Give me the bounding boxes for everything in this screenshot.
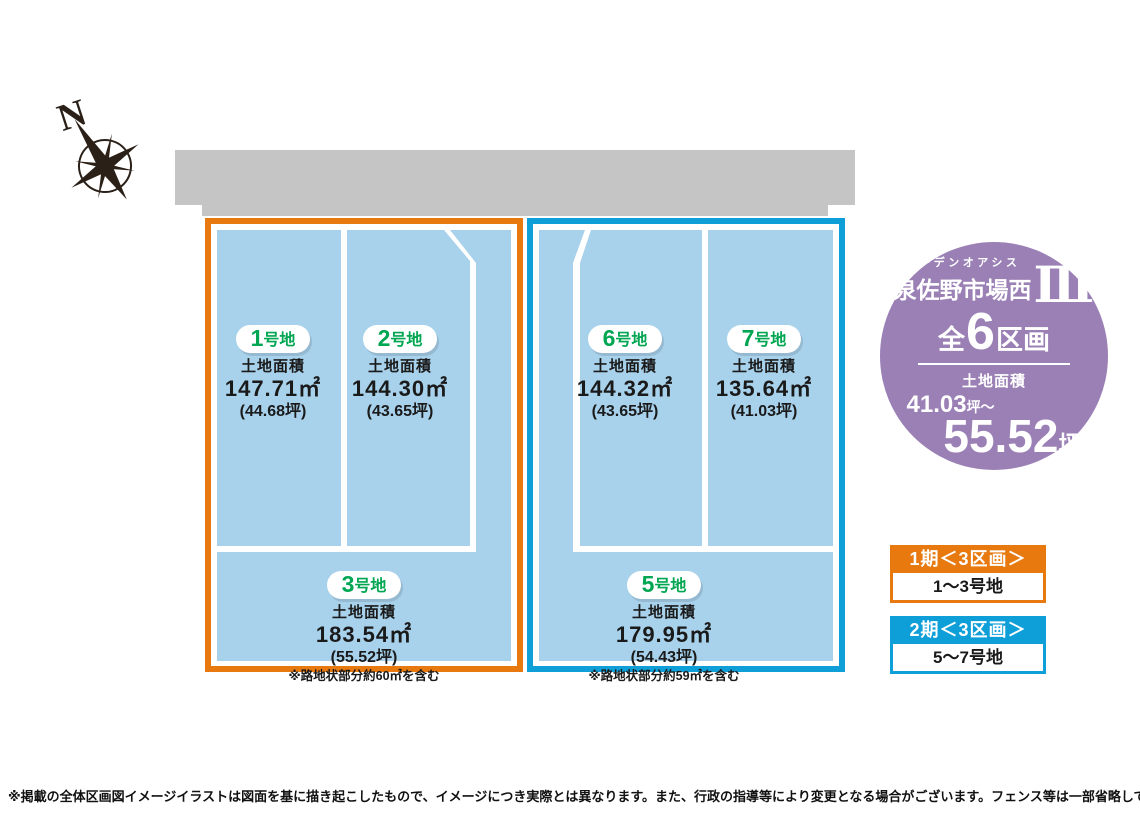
count-suffix: 区画 [996, 318, 1050, 357]
count-prefix: 全 [938, 318, 965, 357]
total-lot-count: 全6区画 [938, 309, 1050, 357]
area-label: 土地面積 [249, 604, 479, 621]
flyer-canvas: N 1号地 土地面積 147.71㎡ (44.68坪) 2号地 土地面積 144… [0, 0, 1140, 830]
compass-rose-icon: N [45, 88, 160, 213]
plot-3-label: 3号地 土地面積 183.54㎡ (55.52坪) ※路地状部分約60㎡を含む [249, 571, 479, 683]
project-title: 泉佐野市場西 [894, 271, 1032, 305]
project-subtitle: ガーデンオアシス [905, 254, 1021, 270]
plot-number-suffix: 号地 [615, 332, 647, 349]
plot-number: 1 [251, 325, 264, 351]
road [175, 150, 855, 216]
area-label: 土地面積 [649, 358, 879, 375]
count-number: 6 [966, 309, 995, 356]
plot-2-pill: 2号地 [363, 325, 438, 353]
disclaimer-text: ※掲載の全体区画図イメージイラストは図面を基に描き起こしたもので、イメージにつき… [8, 786, 1136, 805]
project-roman-numeral: Ⅲ [1034, 266, 1095, 305]
plot-number: 2 [378, 325, 391, 351]
plot-number: 7 [742, 325, 755, 351]
plot-3-pill: 3号地 [327, 571, 402, 599]
area-note: ※路地状部分約60㎡を含む [249, 669, 479, 683]
area-note: ※路地状部分約59㎡を含む [549, 669, 779, 683]
area-value: 179.95㎡ [549, 622, 779, 647]
plot-2-label: 2号地 土地面積 144.30㎡ (43.65坪) [285, 325, 515, 421]
area-value: 135.64㎡ [649, 376, 879, 401]
area-tsubo: (41.03坪) [649, 403, 879, 421]
plot-number: 6 [603, 325, 616, 351]
plot-number-suffix: 号地 [754, 332, 786, 349]
project-title-row: ガーデンオアシス 泉佐野市場西 Ⅲ [894, 254, 1095, 305]
area-tsubo: (43.65坪) [285, 403, 515, 421]
area-tsubo: (54.43坪) [549, 649, 779, 667]
badge-divider [918, 363, 1070, 365]
area-tsubo: (55.52坪) [249, 649, 479, 667]
area-label: 土地面積 [285, 358, 515, 375]
plot-number: 5 [642, 571, 655, 597]
plot-number-suffix: 号地 [390, 332, 422, 349]
area-max-unit: 坪 [1059, 431, 1082, 457]
legend-phase-1: 1期＜3区画＞ 1〜3号地 [890, 545, 1046, 603]
area-value: 183.54㎡ [249, 622, 479, 647]
plot-7-pill: 7号地 [727, 325, 802, 353]
legend-phase-1-plots: 1〜3号地 [890, 573, 1046, 603]
area-label: 土地面積 [549, 604, 779, 621]
area-value: 144.30㎡ [285, 376, 515, 401]
legend-phase-2-header: 2期＜3区画＞ [890, 616, 1046, 644]
legend-phase-2-plots: 5〜7号地 [890, 644, 1046, 674]
plot-number-suffix: 号地 [354, 578, 386, 595]
plot-5-label: 5号地 土地面積 179.95㎡ (54.43坪) ※路地状部分約59㎡を含む [549, 571, 779, 683]
plot-7-label: 7号地 土地面積 135.64㎡ (41.03坪) [649, 325, 879, 421]
area-range-max: 55.52坪 [907, 415, 1082, 459]
plot-number-suffix: 号地 [654, 578, 686, 595]
area-range: 41.03坪〜 55.52坪 [907, 393, 1082, 459]
badge-area-label: 土地面積 [962, 370, 1026, 391]
legend-phase-2: 2期＜3区画＞ 5〜7号地 [890, 616, 1046, 674]
plot-number: 3 [342, 571, 355, 597]
legend-phase-1-header: 1期＜3区画＞ [890, 545, 1046, 573]
project-badge: ガーデンオアシス 泉佐野市場西 Ⅲ 全6区画 土地面積 41.03坪〜 55.5… [880, 242, 1108, 470]
area-max-value: 55.52 [943, 410, 1058, 462]
plot-5-pill: 5号地 [627, 571, 702, 599]
compass-north-label: N [52, 91, 91, 139]
